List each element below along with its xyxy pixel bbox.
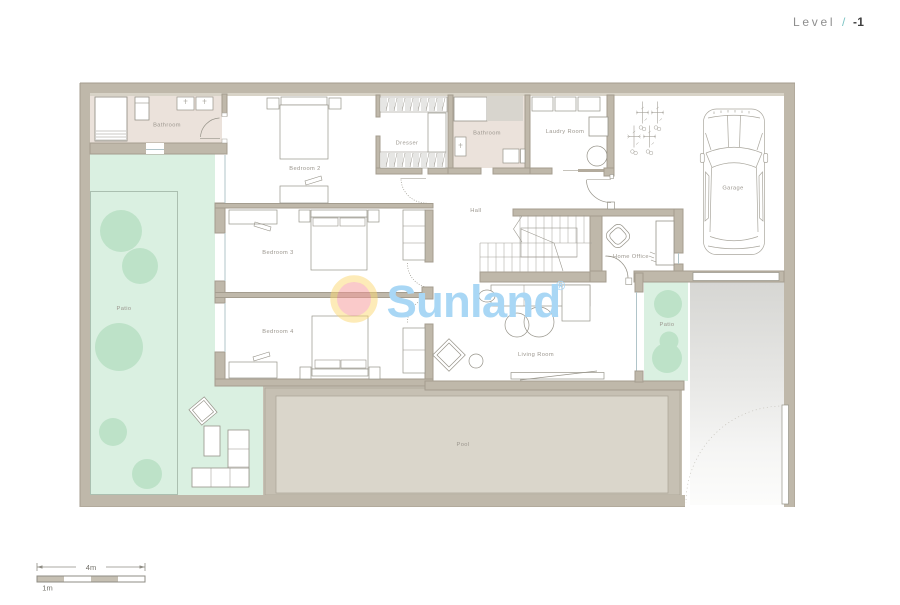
svg-text:Level: Level: [793, 15, 835, 29]
svg-text:®: ®: [556, 279, 566, 293]
svg-text:Pool: Pool: [457, 442, 470, 448]
svg-text:Living Room: Living Room: [518, 352, 554, 358]
svg-text:Bathroom: Bathroom: [473, 131, 501, 137]
svg-text:Sunland: Sunland: [387, 276, 561, 327]
svg-text:Patio: Patio: [117, 306, 132, 312]
svg-text:Bathroom: Bathroom: [153, 123, 181, 129]
svg-text:Bedroom 4: Bedroom 4: [262, 329, 293, 335]
svg-text:-1: -1: [853, 15, 864, 29]
svg-text:4m: 4m: [86, 563, 96, 572]
svg-text:Dresser: Dresser: [396, 141, 419, 147]
svg-text:Bedroom 2: Bedroom 2: [289, 166, 320, 172]
svg-text:Patio: Patio: [660, 322, 675, 328]
svg-text:Home Office: Home Office: [613, 254, 649, 260]
svg-text:1m: 1m: [42, 584, 52, 593]
svg-text:Laudry Room: Laudry Room: [546, 129, 585, 135]
svg-text:Garage: Garage: [722, 186, 743, 192]
svg-text:Hall: Hall: [470, 208, 481, 214]
svg-text:Bedroom 3: Bedroom 3: [262, 250, 293, 256]
